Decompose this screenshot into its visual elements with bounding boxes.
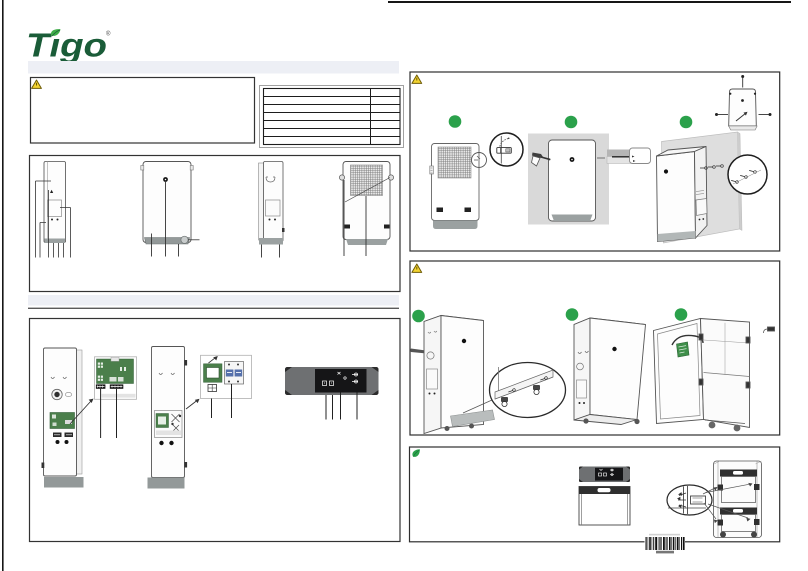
svg-text:Tıgo: Tıgo [26, 27, 107, 64]
svg-text:®: ® [106, 31, 111, 38]
